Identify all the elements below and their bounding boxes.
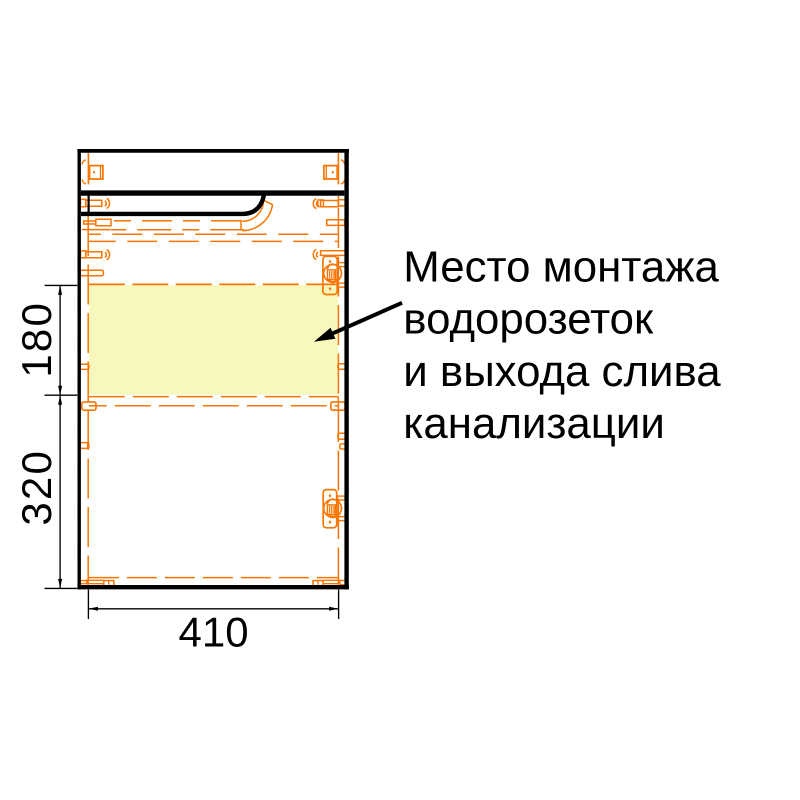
svg-text:канализации: канализации — [403, 399, 665, 448]
svg-text:410: 410 — [179, 609, 249, 656]
svg-text:водорозеток: водорозеток — [403, 295, 654, 344]
svg-text:и выхода слива: и выхода слива — [403, 347, 721, 396]
svg-text:180: 180 — [13, 301, 60, 378]
svg-text:Место монтажа: Место монтажа — [403, 243, 719, 292]
svg-text:320: 320 — [13, 449, 60, 526]
